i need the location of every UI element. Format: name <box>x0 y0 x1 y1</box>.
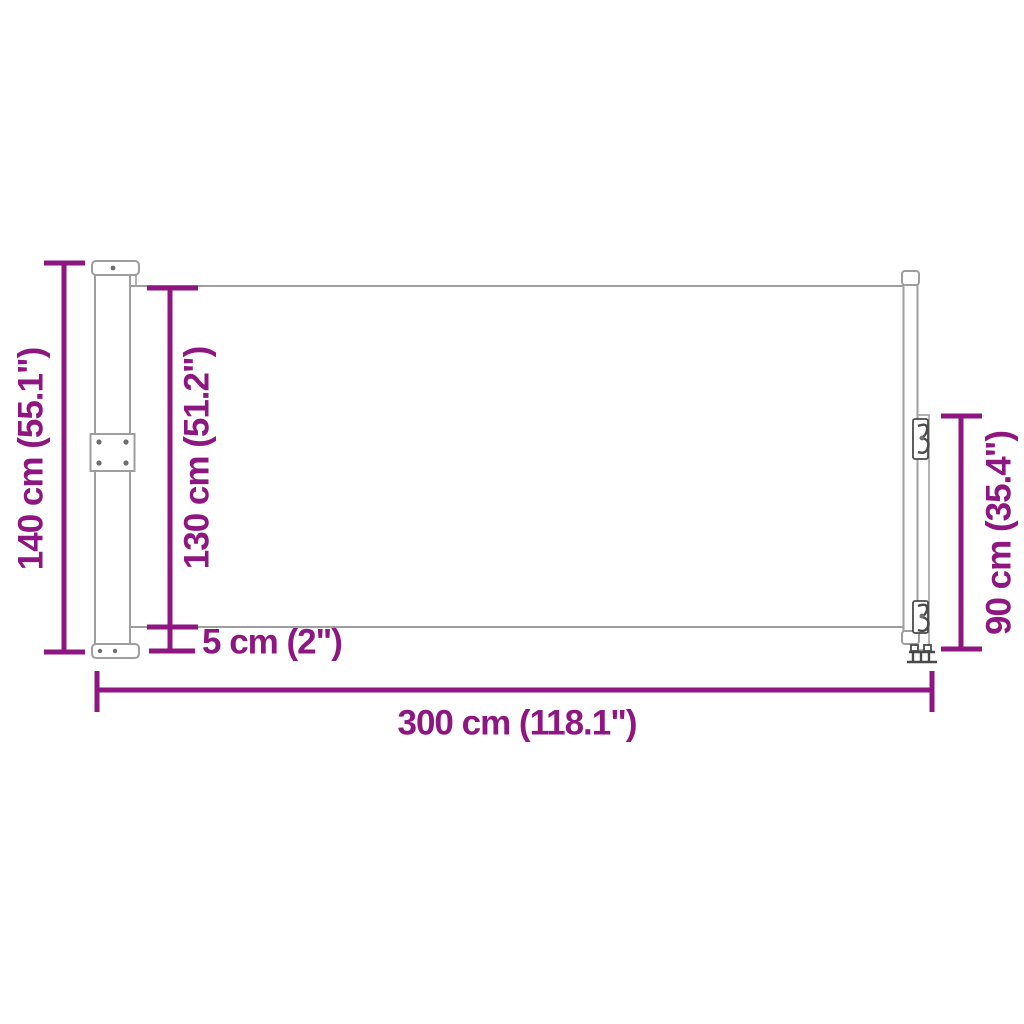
floor-foot <box>907 645 937 662</box>
plate-screw <box>123 439 128 444</box>
product-dimension-diagram: 140 cm (55.1") 130 cm (51.2") 5 cm (2") … <box>0 0 1024 1024</box>
awning-fabric-panel <box>130 286 904 627</box>
top-cap-screw <box>111 266 116 271</box>
pole-height-label: 90 cm (35.4") <box>982 431 1017 635</box>
plate-screw <box>123 460 128 465</box>
fabric-height-label: 130 cm (51.2") <box>180 347 215 569</box>
upper-latch-handle <box>913 419 928 459</box>
total-width-label: 300 cm (118.1") <box>398 706 637 741</box>
plate-screw <box>96 460 101 465</box>
cassette-top-cap <box>92 261 139 275</box>
bottom-gap-label: 5 cm (2") <box>202 625 342 660</box>
bottom-cap-screw <box>98 649 102 653</box>
lower-latch-handle <box>913 601 928 633</box>
wall-mounting-plate <box>91 434 135 471</box>
bottom-cap-screw <box>113 649 117 653</box>
pole-top-cap <box>902 271 919 285</box>
dim-pole-height-line <box>941 416 982 649</box>
dim-bottom-gap-line <box>149 627 195 651</box>
pull-out-pole <box>902 271 937 662</box>
awning-line-drawing <box>0 0 1024 1024</box>
total-height-label: 140 cm (55.1") <box>14 348 49 570</box>
plate-screw <box>96 439 101 444</box>
